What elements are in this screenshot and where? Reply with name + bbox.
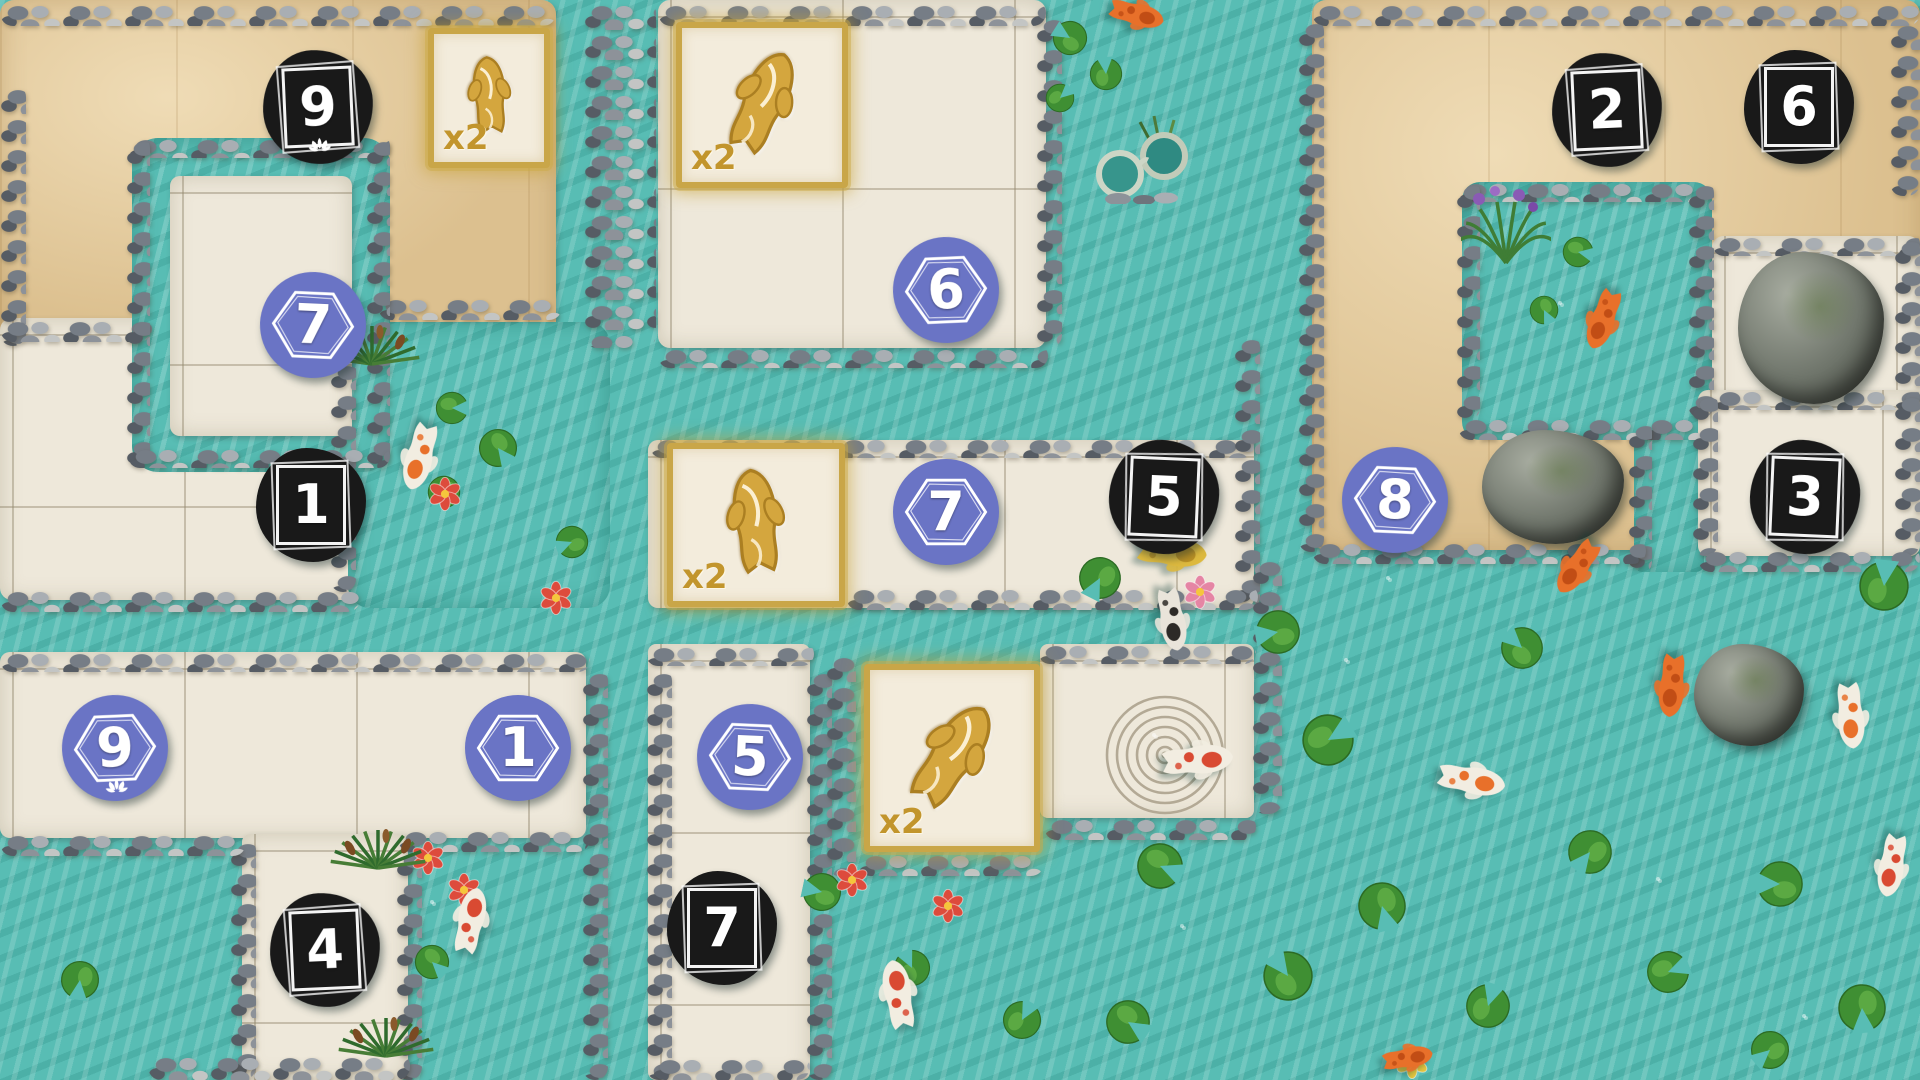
koi-fish-icon xyxy=(1096,0,1174,43)
lily-pad-icon xyxy=(1251,605,1304,658)
lily-pad xyxy=(1500,626,1544,670)
pebble-border xyxy=(0,830,246,856)
lily-pad xyxy=(1357,881,1407,931)
pebble-border xyxy=(0,0,556,26)
lily-pad-icon xyxy=(1096,990,1160,1054)
gold-koi-icon xyxy=(719,459,793,591)
pebble-border xyxy=(1894,392,1920,556)
koi-fish-orange xyxy=(1371,1034,1440,1080)
pebble-border xyxy=(1890,20,1920,196)
pebble-border xyxy=(0,84,26,346)
lotus-icon xyxy=(305,136,334,158)
water-ripple xyxy=(1180,924,1184,928)
lily-pad-icon xyxy=(1524,290,1564,330)
lily-pad-icon xyxy=(1855,557,1912,614)
score-token-purple[interactable]: 9 xyxy=(60,693,171,804)
lily-pad-icon xyxy=(1491,617,1553,679)
koi-fish-icon xyxy=(1646,642,1699,726)
lily-pad xyxy=(1756,860,1804,908)
lily-pad-icon xyxy=(1835,981,1888,1034)
lily-pad-icon xyxy=(995,993,1049,1047)
koi-fish-icon xyxy=(1149,730,1243,790)
pebble-border xyxy=(126,136,150,468)
score-token-black[interactable]: 1 xyxy=(256,448,366,562)
pebble-border xyxy=(1688,180,1714,418)
lily-pad-icon xyxy=(1756,860,1805,909)
lotus-icon xyxy=(102,777,131,795)
flower-red xyxy=(835,863,869,897)
token-number: 2 xyxy=(1587,82,1627,138)
lily-pad-icon xyxy=(1742,1022,1798,1078)
game-board: x2 x2 x2 x2 9 xyxy=(0,0,1920,1080)
token-number: 3 xyxy=(1785,469,1825,525)
score-token-purple[interactable]: 5 xyxy=(695,702,806,813)
lily-pad-icon xyxy=(1129,835,1191,897)
pebble-border xyxy=(1036,14,1062,348)
koi-multiplier-tile[interactable]: x2 xyxy=(864,664,1040,852)
token-number: 7 xyxy=(703,901,741,955)
lily-pad xyxy=(1837,983,1887,1033)
koi-fish-icon xyxy=(1862,821,1920,908)
token-frame: 6 xyxy=(1764,67,1834,147)
lily-pad xyxy=(1646,950,1690,994)
lily-pad xyxy=(1529,295,1559,325)
pebble-border xyxy=(1692,392,1718,556)
water-ripple xyxy=(1386,576,1390,580)
pebble-border xyxy=(858,850,1044,876)
koi-fish-orange xyxy=(1096,0,1174,43)
ornament-spectacles xyxy=(1088,112,1204,204)
lily-pad xyxy=(1002,1000,1042,1040)
pebble-border xyxy=(658,344,1048,368)
lily-pad xyxy=(1562,236,1594,268)
koi-multiplier-tile[interactable]: x2 xyxy=(667,443,845,607)
lily-pad xyxy=(1136,842,1184,890)
lily-pad xyxy=(60,960,100,1000)
token-frame: 1 xyxy=(276,465,346,545)
token-number: 6 xyxy=(1780,80,1818,134)
lily-pad-icon xyxy=(1045,13,1095,63)
pebble-border xyxy=(1298,18,1324,552)
koi-fish-icon xyxy=(1371,1034,1440,1080)
pebble-border xyxy=(582,668,608,1080)
lily-pad-icon xyxy=(1070,548,1129,607)
token-frame: 4 xyxy=(288,909,361,992)
koi-fish-orange xyxy=(1646,642,1699,726)
flower-icon xyxy=(835,863,869,897)
token-number: 9 xyxy=(298,79,338,135)
water-ripple xyxy=(1656,877,1660,881)
token-number: 7 xyxy=(927,485,965,539)
lily-pad-icon xyxy=(1559,233,1597,271)
lily-pad-icon xyxy=(1351,875,1412,936)
score-token-purple[interactable]: 7 xyxy=(893,459,999,565)
flower-icon xyxy=(931,889,965,923)
pebble-border xyxy=(652,1054,810,1080)
token-frame: 9 xyxy=(281,66,354,149)
iris-plant-icon xyxy=(1461,185,1551,275)
token-frame: 3 xyxy=(1768,456,1841,539)
token-number: 1 xyxy=(292,478,330,532)
lily-pad xyxy=(478,428,518,468)
score-token-purple[interactable]: 8 xyxy=(1340,445,1451,556)
score-token-purple[interactable]: 1 xyxy=(465,695,571,801)
lily-pad xyxy=(1052,20,1088,56)
koi-fish-icon xyxy=(1423,748,1516,812)
plant-grass xyxy=(334,1014,438,1080)
lily-pad-icon xyxy=(1459,977,1516,1034)
water-ripple xyxy=(1802,1014,1806,1018)
water-ripple xyxy=(1344,658,1348,662)
lily-pad-icon xyxy=(1640,944,1696,1000)
score-token-purple[interactable]: 7 xyxy=(258,270,369,381)
koi-fish-white-orange xyxy=(1822,670,1878,758)
lily-pad xyxy=(1750,1030,1790,1070)
token-number: 5 xyxy=(1144,469,1184,525)
multiplier-label: x2 xyxy=(879,802,925,842)
pebble-border xyxy=(1252,556,1282,814)
lily-pad xyxy=(555,525,589,559)
token-number: 4 xyxy=(305,922,345,978)
lily-pad xyxy=(1089,57,1123,91)
token-number: 5 xyxy=(730,729,770,785)
koi-fish-white-red xyxy=(1862,821,1920,908)
rock xyxy=(1694,644,1804,746)
lily-pad-icon xyxy=(470,420,526,476)
koi-multiplier-tile[interactable]: x2 xyxy=(676,22,848,188)
koi-multiplier-tile[interactable]: x2 xyxy=(428,28,550,168)
lily-pad xyxy=(1567,829,1613,875)
pebble-border xyxy=(646,668,672,1080)
pond-spectacles-icon xyxy=(1088,112,1204,204)
water-ripple xyxy=(1558,301,1562,305)
pebble-border xyxy=(1038,640,1256,664)
pebble-border xyxy=(0,648,590,672)
pebble-border xyxy=(826,652,856,876)
lotus-icon xyxy=(305,136,334,154)
koi-fish-white-red xyxy=(1149,730,1243,790)
pebble-border xyxy=(646,642,814,666)
koi-fish-icon xyxy=(1822,670,1878,758)
pebble-border xyxy=(366,136,390,468)
lily-pad-icon xyxy=(1252,940,1325,1013)
token-frame: 7 xyxy=(687,888,757,968)
lily-pad-icon xyxy=(1558,820,1623,885)
lily-pad xyxy=(1105,999,1151,1045)
flower-red xyxy=(539,581,573,615)
pebble-border xyxy=(1312,0,1920,26)
pebble-border xyxy=(0,586,360,612)
token-number: 8 xyxy=(1375,472,1415,528)
lily-pad xyxy=(1301,713,1355,767)
token-number: 1 xyxy=(499,721,537,775)
score-token-black[interactable]: 7 xyxy=(667,871,777,985)
token-frame: 2 xyxy=(1570,69,1643,152)
token-number: 9 xyxy=(95,720,135,776)
lotus-icon xyxy=(102,777,131,799)
token-frame: 5 xyxy=(1127,456,1200,539)
flower-red xyxy=(931,889,965,923)
lily-pad xyxy=(1045,83,1075,113)
grass-plant-icon xyxy=(334,1014,438,1080)
pebble-border xyxy=(584,0,656,348)
lily-pad-icon xyxy=(1291,703,1365,777)
pebble-border xyxy=(378,294,562,320)
multiplier-label: x2 xyxy=(443,118,489,158)
lily-pad xyxy=(1078,556,1122,600)
lily-pad xyxy=(1262,950,1314,1002)
koi-fish-white-orange xyxy=(1423,748,1516,812)
token-number: 6 xyxy=(926,262,966,318)
multiplier-label: x2 xyxy=(691,138,737,178)
lily-pad xyxy=(1465,983,1511,1029)
lily-pad-icon xyxy=(1088,56,1125,93)
lily-pad-icon xyxy=(1039,77,1081,119)
multiplier-label: x2 xyxy=(682,557,728,597)
score-token-purple[interactable]: 6 xyxy=(891,235,1002,346)
score-token-black[interactable]: 6 xyxy=(1744,50,1854,164)
lily-pad-icon xyxy=(58,958,103,1003)
flower-icon xyxy=(539,581,573,615)
plant-iris xyxy=(1461,185,1551,275)
lily-pad xyxy=(1858,560,1910,612)
pebble-border xyxy=(230,838,256,1080)
lily-pad-icon xyxy=(550,520,594,564)
lily-pad xyxy=(1255,609,1301,655)
water-ripple xyxy=(430,900,434,904)
token-number: 7 xyxy=(293,297,333,353)
